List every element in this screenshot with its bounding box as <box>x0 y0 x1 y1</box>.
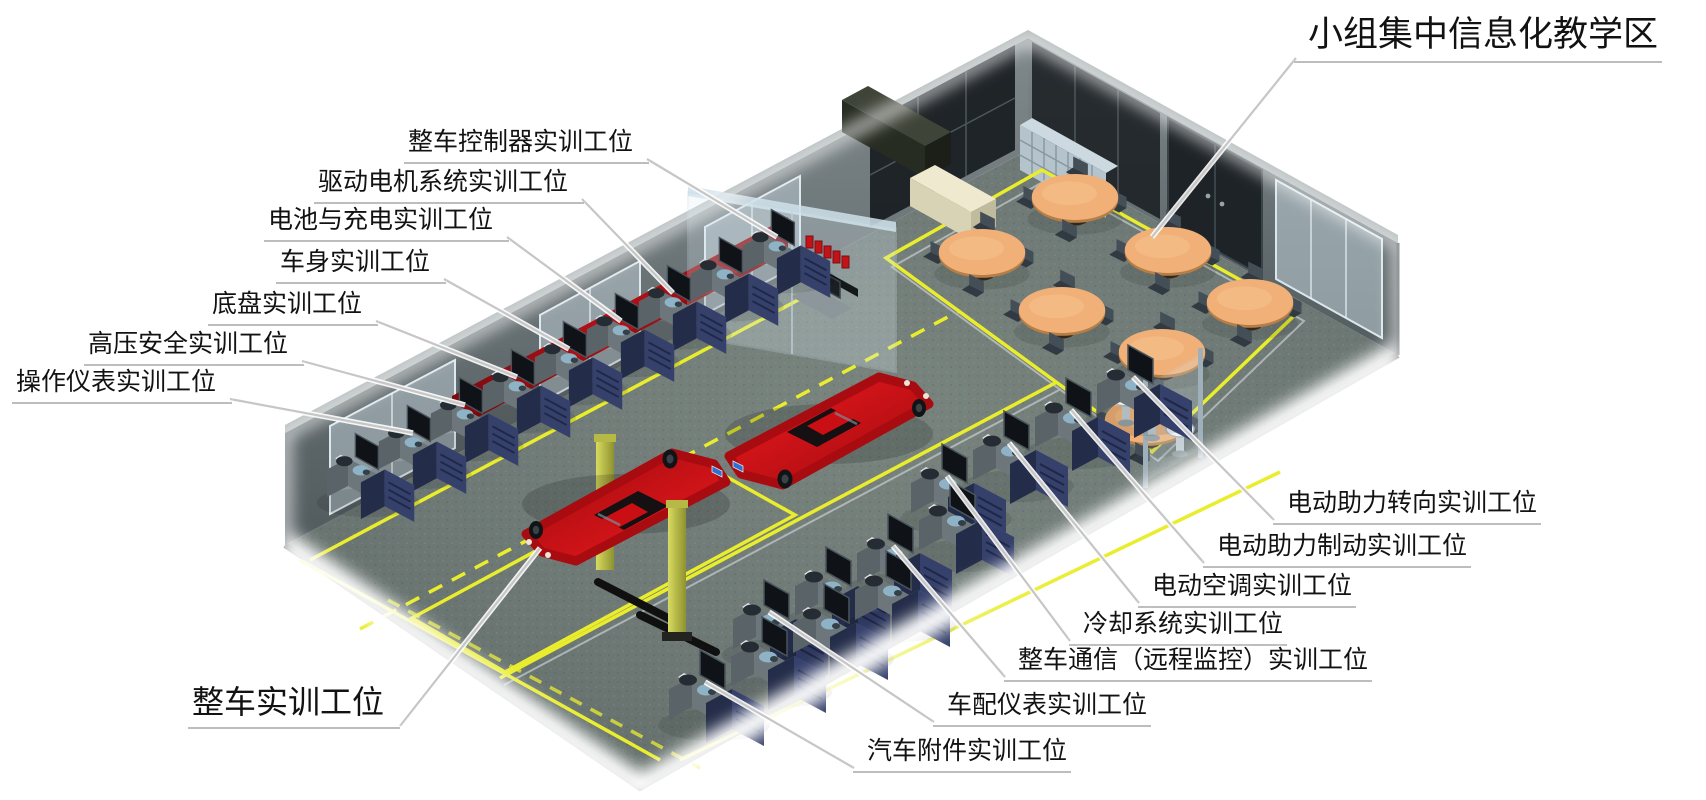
label-teaching-area: 小组集中信息化教学区 <box>1294 12 1662 63</box>
label-station-chassis: 底盘实训工位 <box>208 288 378 326</box>
label-station-cooling: 冷却系统实训工位 <box>1069 608 1287 646</box>
label-station-power-steering: 电动助力转向实训工位 <box>1273 487 1541 525</box>
label-station-instrument-operation: 操作仪表实训工位 <box>12 366 232 404</box>
label-station-electric-ac: 电动空调实训工位 <box>1138 570 1356 608</box>
label-station-drive-motor: 驱动电机系统实训工位 <box>314 166 584 204</box>
label-station-body: 车身实训工位 <box>276 246 446 284</box>
label-station-whole-vehicle: 整车实训工位 <box>188 682 400 729</box>
training-room-diagram: 小组集中信息化教学区 整车控制器实训工位 驱动电机系统实训工位 电池与充电实训工… <box>0 0 1706 800</box>
lift-post <box>668 504 686 636</box>
label-station-battery-charging: 电池与充电实训工位 <box>264 204 509 242</box>
label-station-telematics: 整车通信（远程监控）实训工位 <box>1004 644 1372 682</box>
label-station-accessories: 汽车附件实训工位 <box>853 735 1071 773</box>
label-station-dashboard: 车配仪表实训工位 <box>933 689 1151 727</box>
label-station-vehicle-controller: 整车控制器实训工位 <box>404 126 649 164</box>
room-3d-view <box>0 0 1706 800</box>
label-station-power-brake: 电动助力制动实训工位 <box>1203 530 1471 568</box>
label-station-hv-safety: 高压安全实训工位 <box>84 328 304 366</box>
